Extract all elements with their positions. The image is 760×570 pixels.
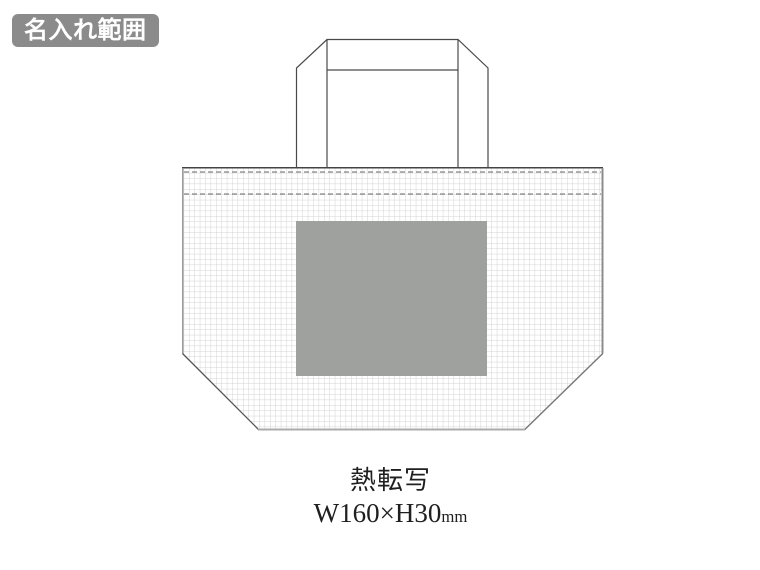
print-spec-caption: 熱転写 W160×H30mm bbox=[193, 464, 588, 533]
handle-outer-outline bbox=[297, 40, 489, 169]
print-area bbox=[296, 221, 487, 376]
print-area-diagram: 名入れ範囲 熱転写 W160×H30mm bbox=[0, 0, 760, 570]
print-method-label: 熱転写 bbox=[193, 464, 588, 497]
print-size-unit: mm bbox=[441, 507, 467, 526]
print-size-value: W160×H30 bbox=[314, 498, 442, 528]
print-size-label: W160×H30mm bbox=[193, 497, 588, 533]
bag-handle bbox=[297, 40, 489, 169]
